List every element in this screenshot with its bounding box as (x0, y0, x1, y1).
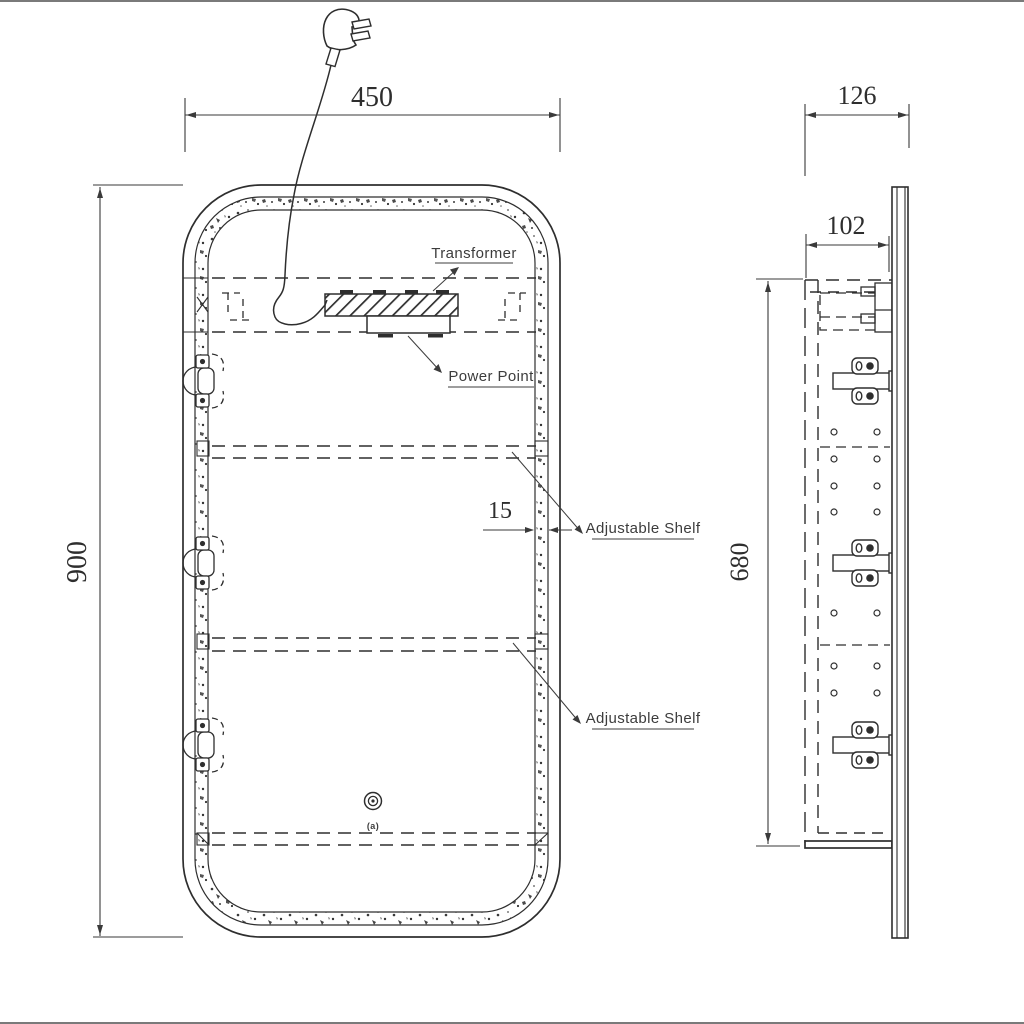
mirror-panel (892, 187, 908, 938)
dim-thickness-label: 15 (488, 498, 512, 524)
front-hinge-top (183, 354, 224, 408)
side-view (805, 187, 908, 938)
svg-text:Power Point: Power Point (448, 368, 534, 385)
svg-text:Adjustable Shelf: Adjustable Shelf (586, 520, 701, 537)
dim-height-900 (93, 185, 183, 937)
front-hinge-middle (183, 536, 224, 590)
front-view: (a) (183, 9, 560, 937)
power-point-box (367, 316, 450, 333)
dim-thickness-15 (483, 527, 572, 533)
dim-overall-depth-126 (805, 104, 909, 176)
technical-drawing-canvas: (a) 450 900 (0, 0, 1024, 1024)
svg-text:Transformer: Transformer (431, 245, 517, 262)
touch-switch-caption: (a) (367, 821, 379, 831)
front-hinge-bottom (183, 718, 224, 772)
transformer-side (820, 293, 877, 330)
dim-cabinet-height-680 (756, 279, 803, 846)
dim-overall-depth-label: 126 (838, 81, 877, 110)
label-power-point: Power Point (408, 336, 534, 387)
power-plug (323, 9, 371, 66)
front-labels: Transformer Power Point Adjustable Shelf… (408, 245, 701, 729)
dim-cabinet-height-label: 680 (725, 543, 754, 582)
dim-height-label: 900 (62, 541, 93, 583)
dim-cabinet-depth-102 (806, 234, 889, 278)
power-point-side (861, 283, 892, 332)
touch-switch-icon (365, 793, 382, 810)
drawing-page: (a) 450 900 (0, 0, 1024, 1024)
dim-cabinet-depth-label: 102 (827, 211, 866, 240)
power-cord (274, 65, 331, 325)
transformer-assembly (325, 290, 458, 338)
side-dimensions: 126 102 680 (725, 81, 909, 846)
svg-text:Adjustable Shelf: Adjustable Shelf (586, 710, 701, 727)
label-transformer: Transformer (431, 245, 517, 291)
dim-width-label: 450 (351, 82, 393, 113)
